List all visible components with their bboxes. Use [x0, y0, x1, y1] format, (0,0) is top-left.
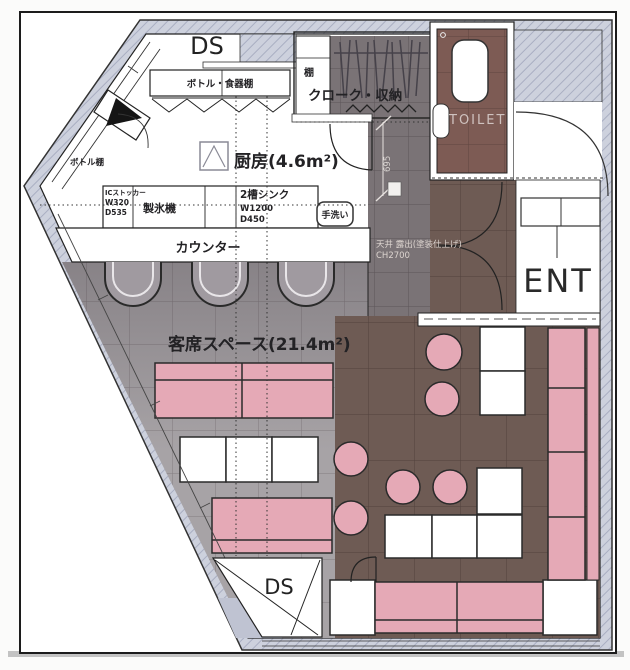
seating-label: 客席スペース(21.4m²)	[167, 334, 351, 355]
cloak-label: クローク・収納	[308, 87, 402, 104]
table-near-ds	[330, 580, 375, 635]
cloak-floor	[330, 36, 430, 116]
bottle-dish-shelf-label: ボトル・食器棚	[187, 78, 254, 90]
closet-shelf-label: 棚	[304, 66, 314, 79]
ceiling-spec-line1: 天井 露出(塗装仕上げ)	[376, 239, 462, 250]
duct-space-top: DS	[190, 32, 296, 68]
ic-stocker-depth: D535	[105, 208, 127, 217]
floor-plan-page: DS 棚 クローク・収納 TOILET	[0, 0, 630, 670]
column	[388, 182, 401, 196]
entry-door-swing-area	[514, 102, 602, 180]
toilet-fixture	[452, 40, 488, 102]
counter: カウンター	[56, 228, 370, 262]
ice-maker-label: 製氷機	[142, 201, 176, 215]
entrance-step	[418, 313, 600, 326]
ceiling-spec-line2: CH2700	[376, 251, 410, 261]
dimension-695-text: 695	[383, 156, 393, 172]
floor-drain-symbol	[200, 142, 228, 170]
counter-label: カウンター	[175, 241, 240, 256]
ic-stocker-width: W320	[105, 198, 129, 207]
duct-space-top-label: DS	[190, 32, 224, 60]
duct-space-bottom-label: DS	[264, 575, 294, 599]
floor-plan-drawing: DS 棚 クローク・収納 TOILET	[0, 0, 630, 670]
table-row-middle	[180, 437, 318, 482]
corner-table	[543, 580, 597, 635]
toilet-sink	[433, 104, 449, 138]
toilet-label: TOILET	[448, 113, 506, 128]
hand-wash-label: 手洗い	[321, 209, 348, 221]
counter-chairs	[105, 262, 334, 306]
banquette-right	[548, 328, 599, 580]
ic-stocker-label: ICストッカー	[105, 189, 146, 197]
sink-label: 2槽シンク	[240, 188, 289, 201]
banquette-bottom	[375, 582, 543, 633]
bench-row-lower	[212, 498, 332, 553]
kitchen-label: 厨房(4.6m²)	[234, 151, 339, 172]
equipment-row: ICストッカー W320 D535 製氷機 2槽シンク W1200 D450	[103, 186, 318, 228]
toilet-room: TOILET	[430, 22, 514, 180]
corridor-floor	[368, 116, 432, 316]
bench-row-upper	[155, 363, 333, 418]
sink-depth: D450	[240, 215, 265, 225]
hand-wash-sink: 手洗い	[317, 202, 353, 226]
bottle-shelf-label: ボトル棚	[70, 157, 105, 168]
entrance-label: ENT	[523, 262, 593, 300]
